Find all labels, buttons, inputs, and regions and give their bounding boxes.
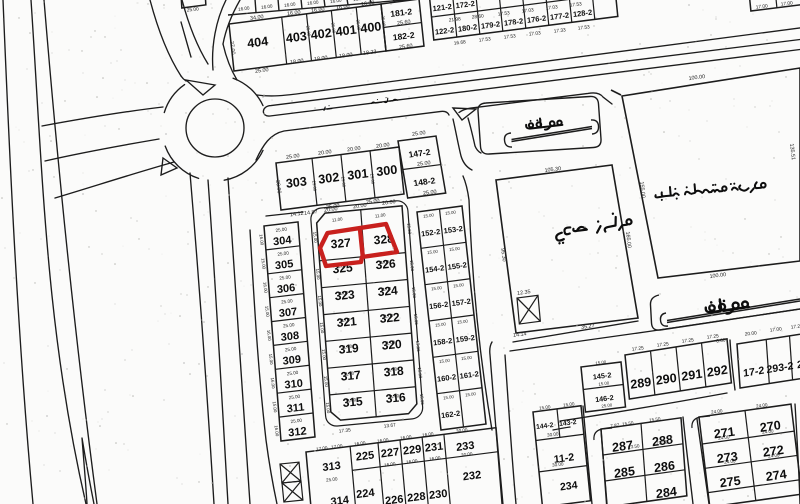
svg-text:307: 307 (278, 306, 297, 320)
svg-text:400: 400 (360, 19, 382, 36)
svg-text:229: 229 (402, 443, 421, 457)
svg-text:401: 401 (335, 22, 357, 39)
svg-text:274: 274 (765, 467, 788, 484)
svg-text:230: 230 (429, 488, 448, 502)
svg-text:308: 308 (280, 330, 299, 344)
svg-text:305: 305 (275, 258, 294, 272)
svg-text:303: 303 (285, 174, 307, 191)
svg-text:312: 312 (288, 425, 307, 439)
svg-text:403: 403 (285, 29, 307, 46)
svg-text:404: 404 (247, 34, 269, 51)
svg-text:309: 309 (282, 354, 301, 368)
svg-text:301: 301 (347, 166, 369, 183)
svg-text:302: 302 (318, 170, 340, 187)
svg-text:310: 310 (284, 378, 303, 392)
svg-text:231: 231 (424, 441, 443, 455)
svg-text:306: 306 (277, 282, 296, 296)
svg-text:313: 313 (322, 460, 341, 474)
svg-text:234: 234 (559, 479, 578, 493)
svg-text:225: 225 (355, 449, 374, 463)
svg-text:402: 402 (310, 26, 332, 43)
svg-text:300: 300 (376, 163, 398, 180)
svg-text:228: 228 (407, 491, 426, 504)
svg-text:286: 286 (654, 458, 676, 475)
svg-text:6.00: 6.00 (716, 337, 726, 344)
svg-text:284: 284 (655, 484, 677, 501)
svg-text:314: 314 (330, 494, 350, 504)
svg-text:285: 285 (614, 464, 636, 481)
svg-text:327: 327 (330, 236, 351, 252)
svg-text:304: 304 (273, 234, 293, 248)
svg-text:224: 224 (356, 487, 376, 501)
svg-text:226: 226 (385, 493, 404, 504)
svg-text:232: 232 (462, 469, 481, 483)
svg-text:311: 311 (286, 401, 305, 415)
svg-text:227: 227 (380, 446, 399, 460)
svg-text:275: 275 (719, 474, 742, 491)
